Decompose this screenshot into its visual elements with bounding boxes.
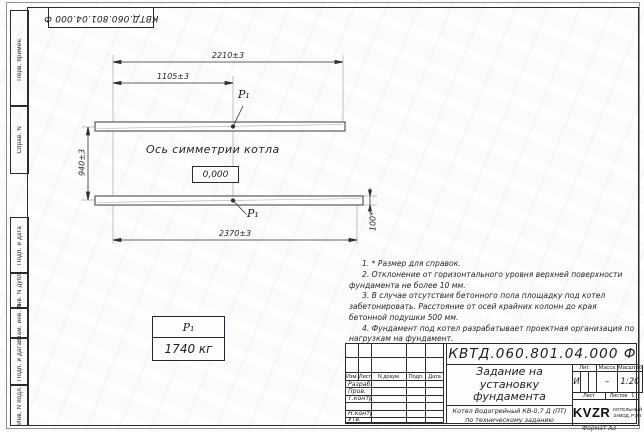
empty-cell xyxy=(372,388,407,395)
empty-cell xyxy=(426,396,444,403)
empty-cell xyxy=(426,418,444,423)
empty-cell xyxy=(346,358,359,373)
empty-cell xyxy=(407,403,426,410)
row-prov: Пров. xyxy=(346,388,372,395)
empty-cell xyxy=(581,372,589,393)
scale-value: 1:20 xyxy=(618,372,643,393)
drawing-sheet: { "sheet": { "format_note": "Формат А3",… xyxy=(0,0,644,430)
row-nkontr: Н.контр. xyxy=(346,411,372,418)
mass-value: – xyxy=(597,372,618,393)
company-name-line-2: ЗАВОД, РЭП xyxy=(613,413,642,419)
empty-cell xyxy=(372,396,407,403)
empty-cell xyxy=(426,403,444,410)
product-line-2: по техническому заданию xyxy=(465,416,554,424)
empty-cell xyxy=(589,372,597,393)
lit-label: Лит. xyxy=(573,365,597,372)
dim-height-between: 940±3 xyxy=(78,141,87,185)
empty-cell xyxy=(372,381,407,388)
sheet-label: Лист xyxy=(573,393,606,400)
empty-cell xyxy=(426,388,444,395)
company-cell: KVZR КОТЕЛЬНЫЙ ЗАВОД, РЭП xyxy=(573,400,639,425)
note-3: 3. В случае отсутствия бетонного пола пл… xyxy=(349,291,637,323)
empty-cell xyxy=(346,344,359,358)
company-logo-text: KVZR xyxy=(573,405,610,420)
empty-cell xyxy=(372,344,407,358)
empty-cell xyxy=(407,344,426,358)
load-table: P₁ 1740 кг xyxy=(152,316,225,361)
col-izm: Изм. xyxy=(346,373,359,381)
col-list: Лист xyxy=(359,373,372,381)
row-blank xyxy=(346,403,372,410)
title-block: Изм. Лист N докум. Подп. Дата Разраб. Пр… xyxy=(345,343,637,424)
technical-notes: 1. * Размер для справок. 2. Отклонение о… xyxy=(349,259,637,345)
empty-cell xyxy=(372,418,407,423)
dim-top-overall: 2210±3 xyxy=(196,51,260,60)
document-title: Задание на установку фундамента xyxy=(447,365,573,405)
col-podp: Подп. xyxy=(407,373,426,381)
row-razrab: Разраб. xyxy=(346,381,372,388)
empty-cell xyxy=(372,411,407,418)
empty-cell xyxy=(426,358,444,373)
sheet-count-row: Лист Листов 1 xyxy=(573,393,639,400)
empty-cell xyxy=(426,344,444,358)
dim-top-half: 1105±3 xyxy=(141,72,205,81)
sheets-cell: Листов 1 xyxy=(606,393,639,400)
dim-beam-width: 100* xyxy=(369,201,378,243)
boiler-symmetry-axis-label: Ось симметрии котла xyxy=(146,143,280,156)
empty-cell xyxy=(372,403,407,410)
col-data: Дата xyxy=(426,373,444,381)
dim-bottom-overall: 2370±3 xyxy=(203,229,267,238)
level-mark-box: 0,000 xyxy=(192,166,239,183)
lit-value: И xyxy=(573,372,581,393)
empty-cell xyxy=(426,411,444,418)
empty-cell xyxy=(407,358,426,373)
document-designation: КВТД.060.801.04.000 Ф xyxy=(447,344,638,365)
empty-cell xyxy=(359,358,372,373)
load-table-value: 1740 кг xyxy=(153,338,224,360)
row-utv: Утв. xyxy=(346,418,372,423)
load-point-label-bottom: P₁ xyxy=(247,207,259,220)
title-block-right: КВТД.060.801.04.000 Ф Задание на установ… xyxy=(446,344,638,423)
sheets-label: Листов xyxy=(610,393,628,399)
note-2: 2. Отклонение от горизонтального уровня … xyxy=(349,270,637,292)
load-table-symbol: P₁ xyxy=(153,317,224,338)
format-note: Формат А3 xyxy=(582,425,616,432)
empty-cell xyxy=(372,358,407,373)
empty-cell xyxy=(407,418,426,423)
load-point-label-top: P₁ xyxy=(238,88,250,101)
col-doc: N докум. xyxy=(372,373,407,381)
note-1: 1. * Размер для справок. xyxy=(349,259,637,270)
product-line-1: Котел Водогрейный КВ-0,7 Д (ПТ) xyxy=(453,407,567,415)
company-name: КОТЕЛЬНЫЙ ЗАВОД, РЭП xyxy=(613,407,642,418)
empty-cell xyxy=(426,381,444,388)
mass-label: Масса xyxy=(597,365,618,372)
foundation-beams xyxy=(95,122,363,205)
scale-label: Масштаб xyxy=(618,365,643,372)
sheets-value: 1 xyxy=(631,393,634,399)
empty-cell xyxy=(407,396,426,403)
product-description: Котел Водогрейный КВ-0,7 Д (ПТ) по техни… xyxy=(447,405,573,425)
empty-cell xyxy=(407,388,426,395)
level-mark-value: 0,000 xyxy=(203,170,229,180)
empty-cell xyxy=(359,344,372,358)
title-block-revision-table: Изм. Лист N докум. Подп. Дата Разраб. Пр… xyxy=(346,344,446,423)
empty-cell xyxy=(407,381,426,388)
empty-cell xyxy=(407,411,426,418)
row-tkontr: Т.контр. xyxy=(346,396,372,403)
lit-mass-scale-grid: Лит. Масса Масштаб И – 1:20 xyxy=(573,365,639,393)
